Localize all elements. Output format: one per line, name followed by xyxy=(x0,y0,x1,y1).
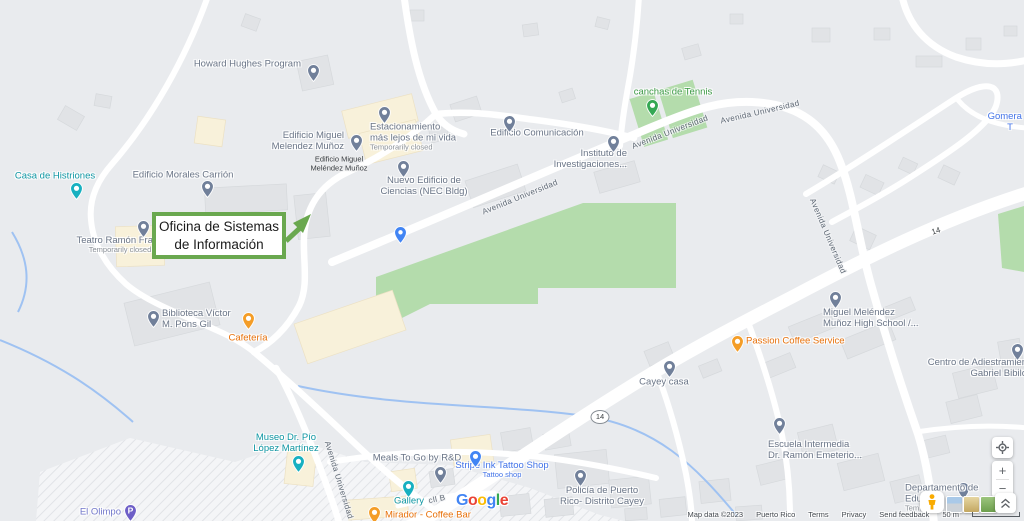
google-logo-letter: o xyxy=(468,492,477,509)
poi-label-line: Gabriel Bibilo xyxy=(928,368,1024,379)
biblioteca-victor-m-pons-gil-label[interactable]: Biblioteca VíctorM. Pons Gil xyxy=(162,308,231,330)
edificio-morales-carrion-label[interactable]: Edificio Morales Carrión xyxy=(133,169,234,180)
attribution-bar: Map data ©2023 Puerto Rico TermsPrivacyS… xyxy=(687,510,1020,519)
policia-de-puerto-rico-distrito-cayey-pin[interactable] xyxy=(574,469,587,492)
passion-coffee-service-pin[interactable] xyxy=(731,335,744,358)
museum-pin-icon xyxy=(292,455,305,473)
terms-link[interactable]: Terms xyxy=(808,510,828,519)
poi-label-line: Casa de Histriones xyxy=(15,170,95,181)
howard-hughes-program-pin[interactable] xyxy=(307,64,320,87)
mirador-coffee-bar-label[interactable]: Mirador - Coffee Bar xyxy=(385,509,471,520)
google-logo-letter: o xyxy=(477,492,486,509)
poi-sublabel: Temporarily closed xyxy=(76,246,163,255)
google-logo-letter: e xyxy=(500,492,508,509)
place-pin-icon xyxy=(394,226,407,244)
poi-label-line: Museo Dr. Pío xyxy=(253,432,318,443)
poi-label-line: Edificio Miguel xyxy=(272,130,344,141)
canchas-de-tennis-label[interactable]: canchas de Tennis xyxy=(634,86,713,97)
building-label-line: Meléndez Muñoz xyxy=(310,164,367,173)
poi-label-line: El Olimpo xyxy=(80,506,121,517)
howard-hughes-program-label[interactable]: Howard Hughes Program xyxy=(194,58,301,69)
school-pin-icon xyxy=(829,291,842,309)
park-pin-icon xyxy=(646,99,659,117)
school-pin-icon xyxy=(1011,343,1024,361)
casa-de-histriones-pin[interactable] xyxy=(70,182,83,205)
museo-dr-pio-lopez-martinez-pin[interactable] xyxy=(292,455,305,478)
annotation-line1: Oficina de Sistemas xyxy=(159,218,279,236)
estacionamiento-mas-lejos-de-mi-vida-pin[interactable] xyxy=(378,106,391,129)
school-pin-icon xyxy=(201,180,214,198)
poi-label-line: Passion Coffee Service xyxy=(746,335,845,346)
edificio-comunicacion-pin[interactable] xyxy=(503,115,516,138)
poi-label-line: Howard Hughes Program xyxy=(194,58,301,69)
google-logo-letter: g xyxy=(487,492,496,509)
miguel-melendez-munoz-high-school-pin[interactable] xyxy=(829,291,842,314)
el-olimpo-pin[interactable]: P xyxy=(124,504,137,521)
map-canvas[interactable] xyxy=(0,0,1024,521)
poi-label-line: Biblioteca Víctor xyxy=(162,308,231,319)
teatro-ramon-frade-pin[interactable] xyxy=(137,220,150,243)
generic-pin-icon xyxy=(378,106,391,124)
escuela-intermedia-dr-ramon-emeterio-label[interactable]: Escuela IntermediaDr. Ramón Emeterio... xyxy=(768,439,862,461)
google-logo[interactable]: Google xyxy=(456,492,508,510)
generic-pin-icon xyxy=(137,220,150,238)
generic-pin-icon xyxy=(663,360,676,378)
zoom-in-button[interactable]: + xyxy=(992,462,1013,479)
poi-label-line: M. Pons Gil xyxy=(162,319,231,330)
pegman-icon xyxy=(927,494,937,510)
casa-de-histriones-label[interactable]: Casa de Histriones xyxy=(15,170,95,181)
cafe-pin-icon xyxy=(731,335,744,353)
passion-coffee-service-label[interactable]: Passion Coffee Service xyxy=(746,335,845,346)
teatro-ramon-frade-label[interactable]: Teatro Ramón FradeTemporarily closed xyxy=(76,235,163,255)
cafe-pin-icon xyxy=(368,506,381,521)
poi-label-line: Edificio Morales Carrión xyxy=(133,169,234,180)
poi-label-line: Dr. Ramón Emeterio... xyxy=(768,450,862,461)
poi-label-line: T xyxy=(988,122,1024,133)
restaurant-pin-icon xyxy=(242,312,255,330)
school-pin-icon xyxy=(307,64,320,82)
annotation-line2: de Información xyxy=(174,236,263,254)
poi-label-line: Gomera M xyxy=(988,111,1024,122)
school-pin-icon xyxy=(773,417,786,435)
nuevo-edificio-de-ciencias-label[interactable]: Nuevo Edificio deCiencias (NEC Bldg) xyxy=(380,175,467,197)
generic-pin-icon xyxy=(503,115,516,133)
poi-label-line: Meals To Go by R&D xyxy=(373,452,462,463)
poi-label-line: Ciencias (NEC Bldg) xyxy=(380,186,467,197)
canchas-de-tennis-pin[interactable] xyxy=(646,99,659,122)
annotation-arrow-icon xyxy=(280,206,320,246)
meals-to-go-by-rd-label[interactable]: Meals To Go by R&D xyxy=(373,452,462,463)
edificio-miguel-melendez-munoz-building-label: Edificio MiguelMeléndez Muñoz xyxy=(310,155,367,172)
right-green-area xyxy=(998,206,1024,272)
annotation-box: Oficina de Sistemas de Información xyxy=(152,212,286,259)
poi-label-line: Melendez Muñoz xyxy=(272,141,344,152)
police-pin-icon xyxy=(574,469,587,487)
poi-label-line: Mirador - Coffee Bar xyxy=(385,509,471,520)
google-logo-letter: G xyxy=(456,492,468,509)
map-data-copyright: Map data ©2023 xyxy=(687,510,743,519)
poi-label-line: Investigaciones... xyxy=(554,159,627,170)
edificio-morales-carrion-pin[interactable] xyxy=(201,180,214,203)
privacy-link[interactable]: Privacy xyxy=(842,510,867,519)
school-pin-icon xyxy=(397,160,410,178)
poi-label-line: López Martínez xyxy=(253,443,318,454)
poi-label-line: Nuevo Edificio de xyxy=(380,175,467,186)
scale-bar xyxy=(972,512,1020,517)
attraction-pin-icon xyxy=(70,182,83,200)
attribution-links: TermsPrivacySend feedback xyxy=(808,510,929,519)
poi-sublabel: Temporarily closed xyxy=(370,144,456,153)
gallery-pin[interactable] xyxy=(402,480,415,503)
biblioteca-victor-m-pons-gil-pin[interactable] xyxy=(147,310,160,333)
campus-blue-place-pin[interactable] xyxy=(394,226,407,249)
edificio-miguel-melendez-munoz-pin[interactable] xyxy=(350,134,363,157)
map-viewport[interactable]: Howard Hughes ProgramEdificio MiguelMele… xyxy=(0,0,1024,521)
store-pin-icon xyxy=(469,450,482,468)
double-chevron-up-icon xyxy=(1000,498,1011,509)
museo-dr-pio-lopez-martinez-label[interactable]: Museo Dr. PíoLópez Martínez xyxy=(253,432,318,454)
poi-label-line: Muñoz High School /... xyxy=(823,318,919,329)
plus-icon: + xyxy=(999,463,1007,478)
mirador-coffee-bar-pin[interactable] xyxy=(368,506,381,521)
scale-label: 50 m xyxy=(942,510,959,519)
cayey-casa-pin[interactable] xyxy=(663,360,676,383)
poi-label-line: Escuela Intermedia xyxy=(768,439,862,450)
stripe-ink-tattoo-shop-pin[interactable] xyxy=(469,450,482,473)
svg-text:P: P xyxy=(127,505,133,515)
cafeteria-pin[interactable] xyxy=(242,312,255,335)
my-location-icon xyxy=(996,441,1009,454)
el-olimpo-label[interactable]: El Olimpo xyxy=(80,506,121,517)
parking-pin-icon: P xyxy=(124,504,137,521)
my-location-button[interactable] xyxy=(992,437,1013,458)
route-14-shield: 14 xyxy=(591,410,610,424)
generic-pin-icon xyxy=(434,466,447,484)
nuevo-edificio-de-ciencias-pin[interactable] xyxy=(397,160,410,183)
library-pin-icon xyxy=(147,310,160,328)
centro-de-adiestramiento-gabriel-bibilo-pin[interactable] xyxy=(1011,343,1024,366)
meals-to-go-by-rd-pin[interactable] xyxy=(434,466,447,489)
poi-label-line: Rico- Distrito Cayey xyxy=(560,496,644,507)
region-label: Puerto Rico xyxy=(756,510,795,519)
instituto-de-investigaciones-pin[interactable] xyxy=(607,135,620,158)
attraction-pin-icon xyxy=(402,480,415,498)
gomera-label[interactable]: Gomera MT xyxy=(988,111,1024,133)
send-feedback-link[interactable]: Send feedback xyxy=(879,510,929,519)
school-pin-icon xyxy=(350,134,363,152)
poi-label-line: canchas de Tennis xyxy=(634,86,713,97)
escuela-intermedia-dr-ramon-emeterio-pin[interactable] xyxy=(773,417,786,440)
edificio-miguel-melendez-munoz-label[interactable]: Edificio MiguelMelendez Muñoz xyxy=(272,130,344,152)
generic-pin-icon xyxy=(607,135,620,153)
